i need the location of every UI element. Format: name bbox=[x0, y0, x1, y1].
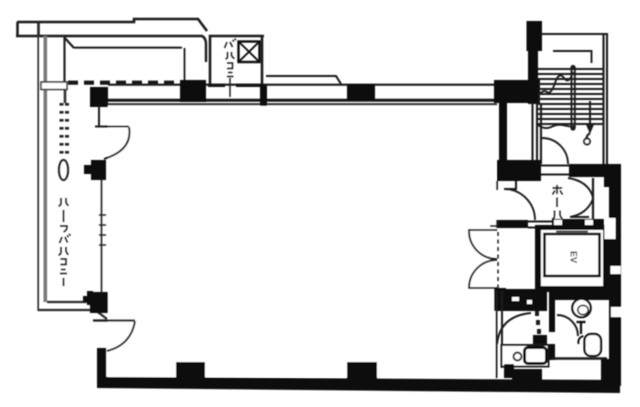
svg-text:EV: EV bbox=[569, 251, 579, 263]
